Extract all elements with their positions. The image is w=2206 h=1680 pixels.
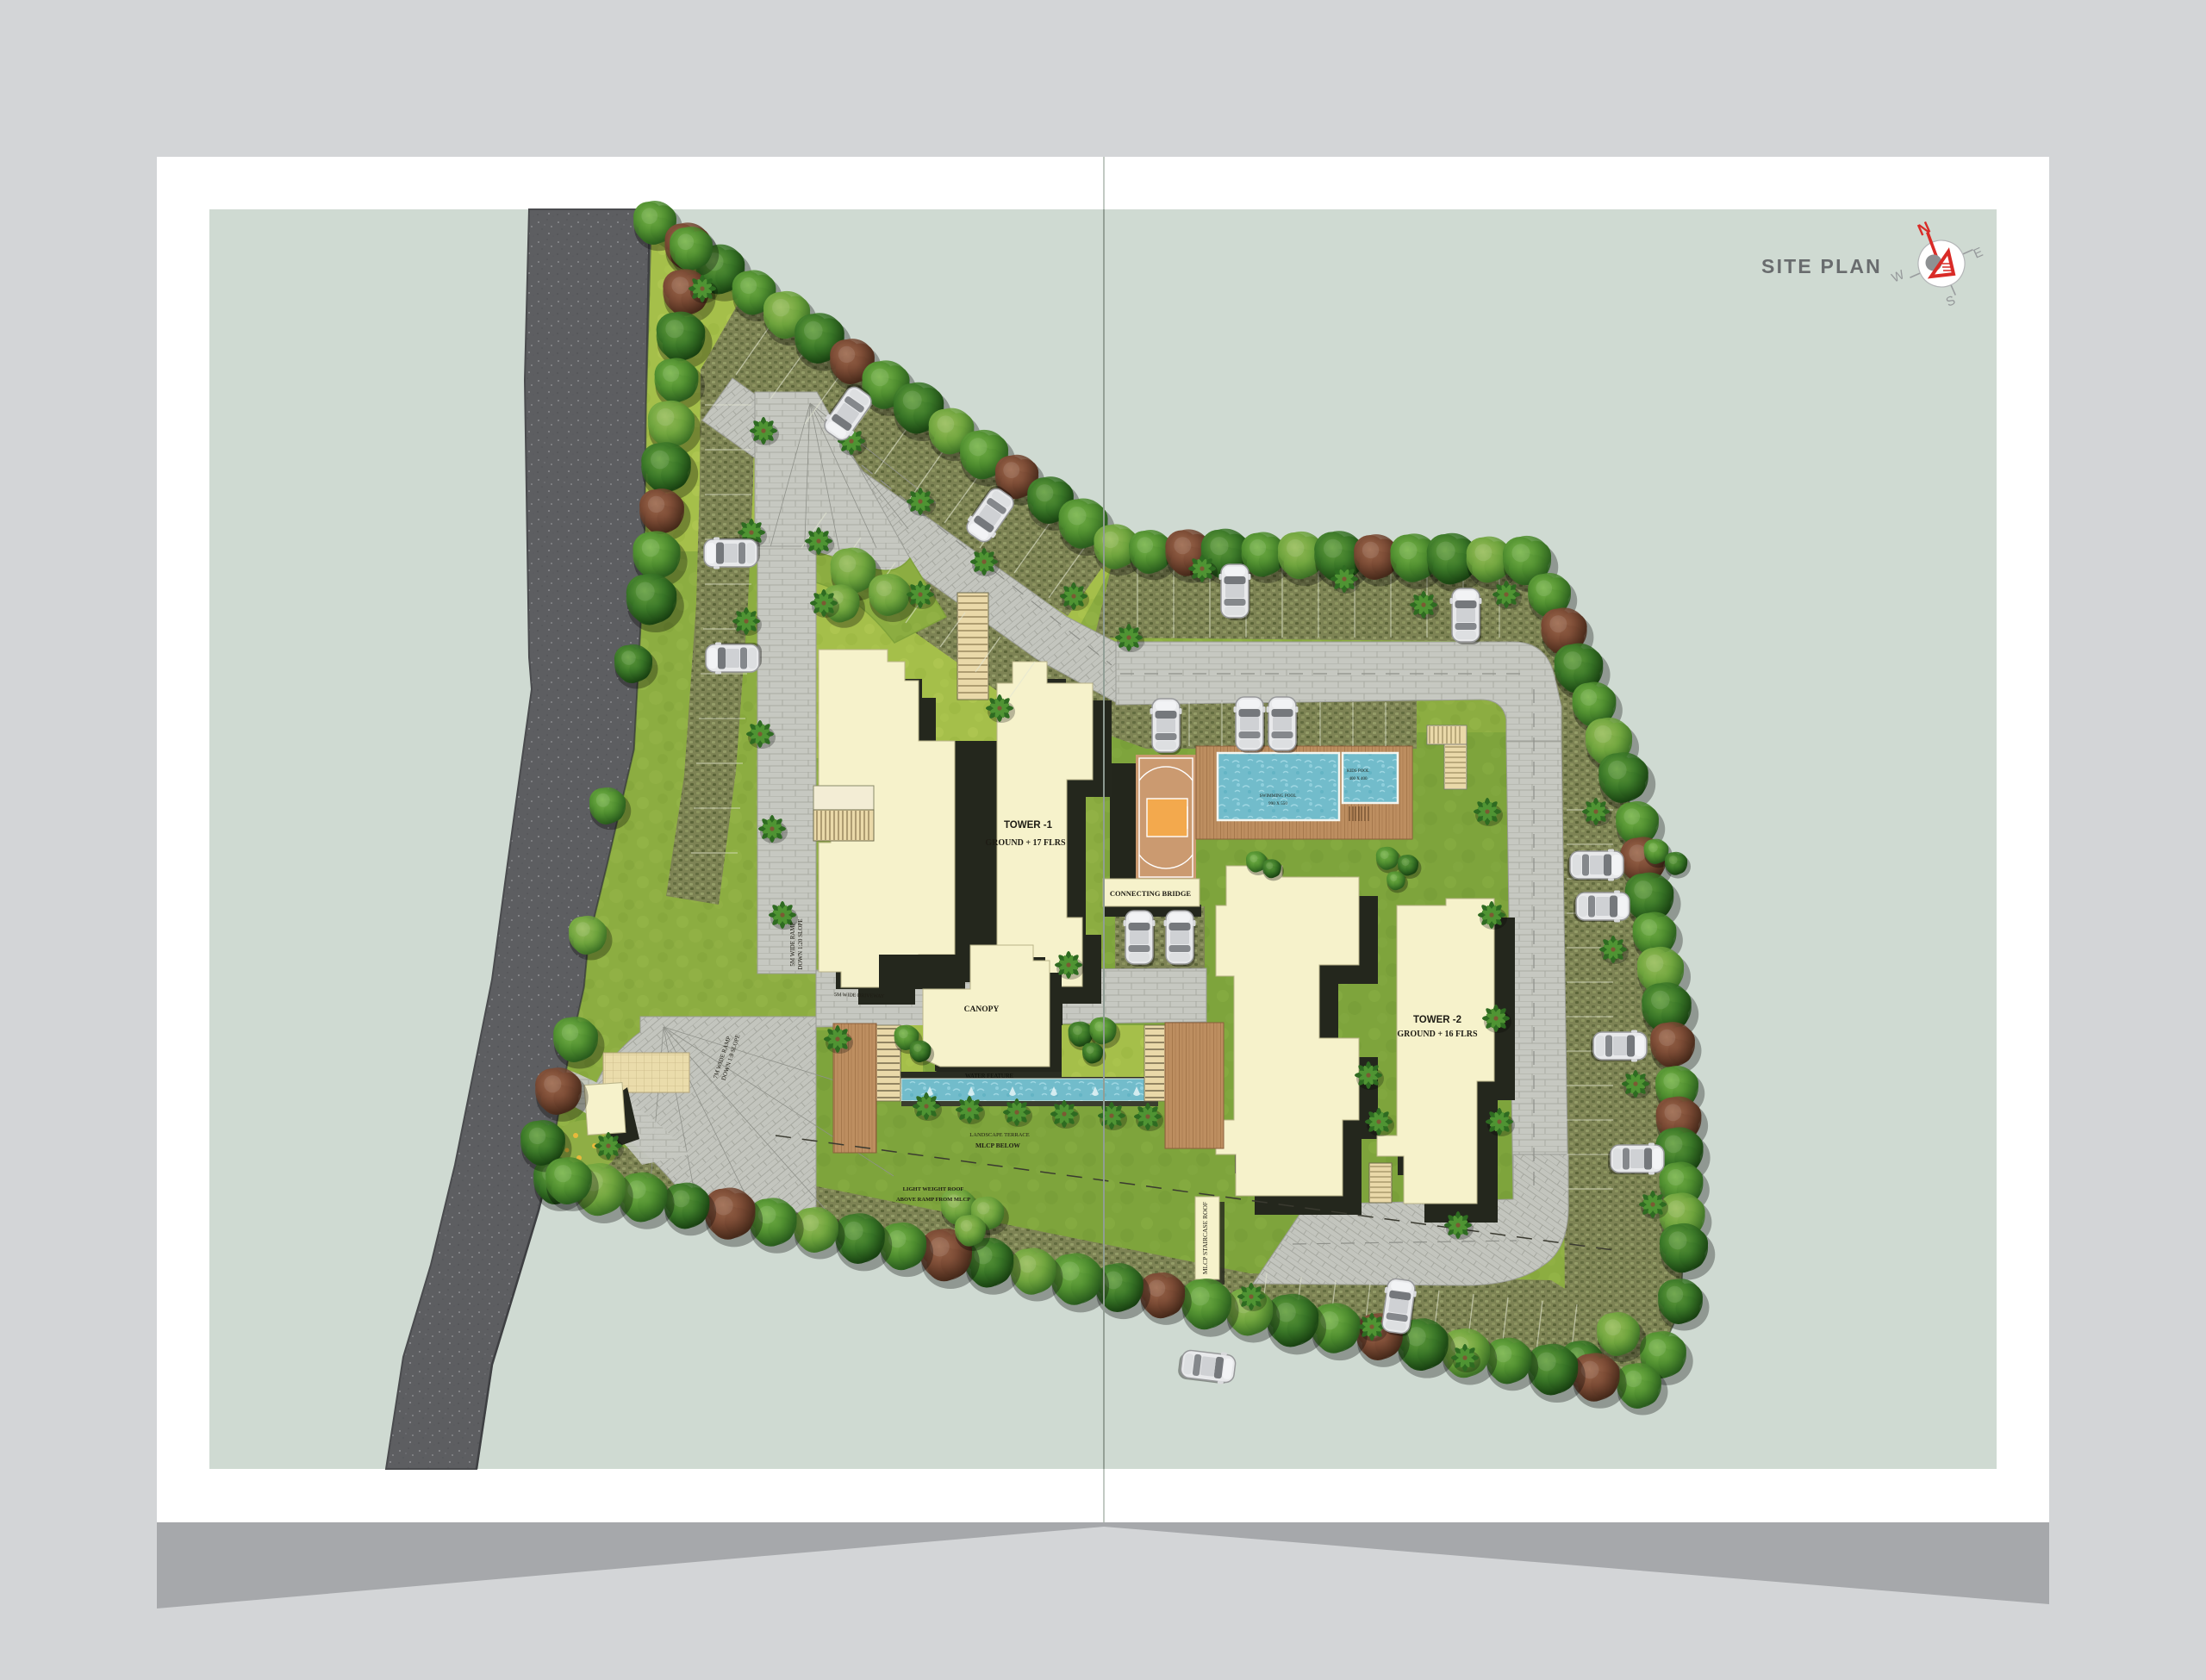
svg-text:LANDSCAPE TERRACE: LANDSCAPE TERRACE: [969, 1132, 1029, 1138]
svg-text:GROUND + 16 FLRS: GROUND + 16 FLRS: [1397, 1030, 1478, 1039]
svg-text:MLCP STAIRCASE ROOF: MLCP STAIRCASE ROOF: [1201, 1202, 1209, 1274]
svg-text:990 X 550: 990 X 550: [1268, 801, 1287, 806]
svg-text:DOWN 1:20 SLOPE: DOWN 1:20 SLOPE: [797, 918, 804, 969]
svg-text:KIDS POOL: KIDS POOL: [1347, 769, 1369, 774]
svg-text:400 X 400: 400 X 400: [1349, 777, 1368, 781]
svg-text:MLCP BELOW: MLCP BELOW: [975, 1142, 1020, 1149]
svg-text:5M WIDE RAMP: 5M WIDE RAMP: [789, 922, 796, 966]
svg-text:SWIMMING POOL: SWIMMING POOL: [1260, 793, 1297, 799]
svg-text:TOWER -2: TOWER -2: [1413, 1015, 1461, 1025]
svg-text:CANOPY: CANOPY: [964, 1005, 1000, 1014]
svg-text:SITE PLAN: SITE PLAN: [1761, 255, 1882, 277]
svg-text:ABOVE RAMP FROM MLCP: ABOVE RAMP FROM MLCP: [896, 1197, 970, 1203]
svg-text:GROUND + 17 FLRS: GROUND + 17 FLRS: [985, 838, 1066, 848]
svg-text:TOWER -1: TOWER -1: [1004, 820, 1053, 831]
svg-text:LIGHT WEIGHT ROOF: LIGHT WEIGHT ROOF: [903, 1186, 964, 1192]
svg-text:WATER FEATURE: WATER FEATURE: [965, 1073, 1013, 1080]
svg-text:CONNECTING BRIDGE: CONNECTING BRIDGE: [1110, 889, 1192, 898]
